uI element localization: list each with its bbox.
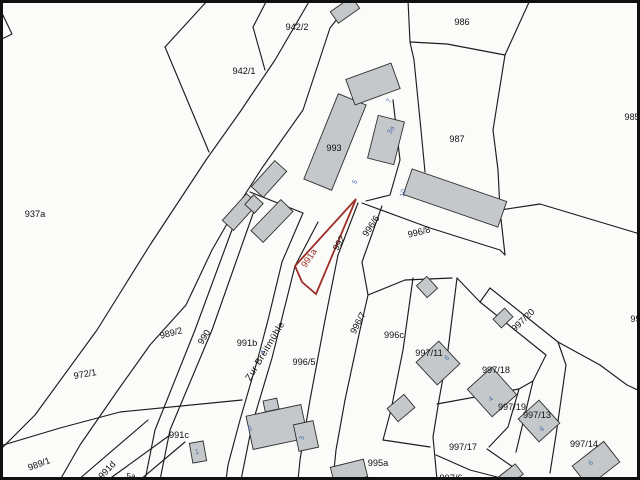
parcel-label: 989/2 <box>159 325 184 340</box>
parcel-label: 993 <box>326 143 341 153</box>
parcel-label-highlighted: 991a <box>299 246 319 269</box>
house-number: 7 <box>385 98 393 105</box>
parcel-label: 997/17 <box>449 442 477 452</box>
cadastral-map[interactable]: 942/2 942/1 986 985 987 937a 993 989/2 9… <box>0 0 640 480</box>
parcel-label: 989/1 <box>26 455 51 472</box>
parcel-label: 991b <box>237 338 257 348</box>
parcel-label: 986 <box>454 17 469 27</box>
parcel-label: 996/8 <box>407 224 432 239</box>
parcel-label: 991c <box>169 430 189 440</box>
parcel-label: 997/19 <box>498 402 526 412</box>
parcel-label: 990 <box>196 328 213 346</box>
building <box>251 161 286 198</box>
map-canvas: 942/2 942/1 986 985 987 937a 993 989/2 9… <box>0 0 640 480</box>
highlighted-parcel-outline[interactable] <box>295 199 356 294</box>
parcel-label: 937a <box>25 209 46 219</box>
building <box>304 94 366 191</box>
building <box>330 459 367 480</box>
parcel-labels: 942/2 942/1 986 985 987 937a 993 989/2 9… <box>25 17 640 480</box>
parcel-label: 997/14 <box>570 439 598 449</box>
parcel-label: 996/5 <box>293 357 316 367</box>
parcel-label: 972/1 <box>73 367 97 381</box>
parcel-label: 997/13 <box>523 410 551 420</box>
parcel-label: 995a <box>368 458 389 468</box>
parcel-label: 997/18 <box>482 365 510 375</box>
building <box>403 169 506 227</box>
building <box>346 63 400 105</box>
parcel-label: 996/7 <box>348 310 368 335</box>
street-name-label: Zur Breitmühle <box>243 319 287 382</box>
parcel-label: 996c <box>384 330 404 340</box>
building <box>330 0 359 23</box>
parcel-label: 997/11 <box>415 348 442 358</box>
parcel-label: 996/6 <box>360 214 381 239</box>
parcel-label: 942/1 <box>233 66 256 76</box>
building <box>387 394 415 421</box>
parcel-label: 987 <box>449 134 464 144</box>
building <box>293 421 318 452</box>
parcel-label: 942/2 <box>286 22 309 32</box>
house-number: 5 <box>351 179 359 186</box>
building <box>368 115 405 164</box>
parcel-label: 997/20 <box>509 307 536 334</box>
